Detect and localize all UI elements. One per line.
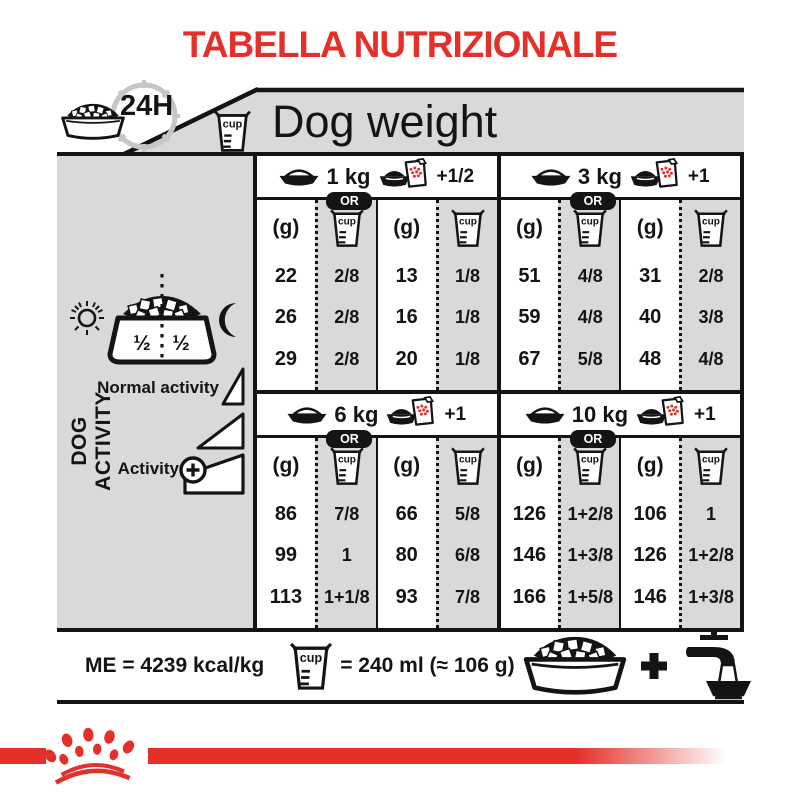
cup-value: 1: [342, 545, 352, 566]
royal-canin-crown-logo: [38, 728, 152, 786]
food-bowl-icon: [515, 635, 635, 697]
grams-value: 40: [639, 306, 661, 329]
cup-equivalence-label: = 240 ml (≈ 106 g): [340, 654, 514, 678]
red-band-right: [148, 748, 744, 764]
grams-value: 86: [275, 503, 297, 526]
grams-value: 29: [275, 348, 297, 371]
pouch-extra-label: +1: [694, 404, 716, 426]
grams-value: 93: [396, 586, 418, 609]
cup-value: 1/8: [455, 307, 480, 328]
cup-value: 1: [706, 504, 716, 525]
or-badge: OR: [326, 430, 372, 448]
grams-header: (g): [393, 216, 420, 240]
pouch-extra-label: +1: [444, 404, 466, 426]
cups-column: 7/8 1 1+1/8: [315, 438, 376, 628]
bowl-pouch-icon: [385, 396, 437, 429]
dog-activity-title: DOG ACTIVITY: [68, 365, 92, 517]
cup-value: 4/8: [578, 266, 603, 287]
sub-10kg-bowl: (g) 126 146 166 1+2/8 1+3/8 1+5/8: [497, 438, 620, 628]
cup-icon: [214, 108, 251, 154]
pouch-extra-label: +1/2: [437, 166, 475, 188]
grams-value: 13: [396, 265, 418, 288]
grams-header: (g): [516, 454, 543, 478]
bowl-pouch-icon: [629, 158, 681, 191]
cup-value: 5/8: [455, 504, 480, 525]
bowl-pouch-icon: [378, 158, 430, 191]
portion-left: ½: [133, 332, 151, 355]
bowl-icon: [279, 167, 319, 186]
grams-column: (g) 126 146 166: [501, 438, 559, 628]
sub-1kg-bowl: (g) 22 26 29 2/8 2/8 2/8: [257, 200, 376, 390]
grams-column: (g) 13 16 20: [378, 200, 436, 390]
cups-column: 4/8 4/8 5/8: [558, 200, 619, 390]
grams-value: 146: [634, 586, 667, 609]
cup-value: 7/8: [334, 504, 359, 525]
grams-value: 26: [275, 306, 297, 329]
sub-3kg-pouch: (g) 31 40 48 2/8 3/8 4/8: [619, 200, 740, 390]
grams-value: 59: [518, 306, 540, 329]
dog-activity-sidebar: ½ ½ DOG ACTIVITY Normal activity Activit…: [57, 156, 253, 628]
cup-value: 3/8: [699, 307, 724, 328]
grams-header: (g): [516, 216, 543, 240]
cup-header: [694, 207, 728, 249]
cups-column: 1 1+2/8 1+3/8: [679, 438, 740, 628]
grams-header: (g): [637, 454, 664, 478]
cup-icon: [330, 207, 364, 249]
sub-6kg-pouch: (g) 66 80 93 5/8 6/8 7/8: [376, 438, 497, 628]
cup-icon: [573, 445, 607, 487]
grams-value: 126: [513, 503, 546, 526]
pouch-extra-label: +1: [688, 166, 710, 188]
grams-value: 113: [270, 586, 302, 609]
feeding-table: ½ ½ DOG ACTIVITY Normal activity Activit…: [57, 152, 744, 632]
cup-value: 5/8: [578, 349, 603, 370]
activity-ramp-medium-icon: [196, 410, 246, 450]
cup-value: 7/8: [455, 587, 480, 608]
cup-value: 2/8: [334, 266, 359, 287]
cup-header: [451, 445, 485, 487]
weight-label: 3 kg: [578, 164, 622, 190]
grams-value: 99: [275, 544, 297, 567]
weight-header-6kg: 6 kg +1 OR: [257, 394, 497, 435]
cup-icon: [573, 207, 607, 249]
cup-icon: [330, 445, 364, 487]
weight-header-3kg: 3 kg +1 OR: [497, 156, 741, 197]
legend-footer: ME = 4239 kcal/kg = 240 ml (≈ 106 g): [57, 632, 744, 704]
cup-icon: [451, 207, 485, 249]
cup-value: 1+2/8: [568, 504, 614, 525]
grams-value: 166: [513, 586, 546, 609]
grams-value: 126: [634, 544, 667, 567]
cup-value: 1+2/8: [688, 545, 734, 566]
sub-1kg-pouch: (g) 13 16 20 1/8 1/8 1/8: [376, 200, 497, 390]
cup-value: 1/8: [455, 266, 480, 287]
bowl-pouch-icon: [635, 396, 687, 429]
grams-value: 146: [513, 544, 546, 567]
cup-icon: [694, 207, 728, 249]
bowl-icon: [287, 405, 327, 424]
sub-3kg-bowl: (g) 51 59 67 4/8 4/8 5/8: [497, 200, 620, 390]
weight-label: 10 kg: [572, 402, 628, 428]
weight-header-1kg: 1 kg +1/2 OR: [257, 156, 497, 197]
sub-6kg-bowl: (g) 86 99 113 7/8 1 1+1/8: [257, 438, 376, 628]
cup-icon: [694, 445, 728, 487]
grams-value: 16: [396, 306, 418, 329]
grams-value: 48: [639, 348, 661, 371]
food-bowl-icon: [58, 100, 128, 144]
portion-right: ½: [172, 332, 190, 355]
cup-value: 1+1/8: [324, 587, 370, 608]
plus-icon: [639, 651, 669, 681]
grams-header: (g): [273, 216, 300, 240]
cup-header: [573, 207, 607, 249]
cup-icon: [290, 637, 332, 695]
grams-column: (g) 22 26 29: [257, 200, 315, 390]
half-half-bowl-icon: ½ ½: [101, 274, 223, 366]
cup-value: 1+3/8: [568, 545, 614, 566]
weight-label: 1 kg: [326, 164, 370, 190]
activity-label: Activity: [107, 459, 179, 479]
cups-column: 1/8 1/8 1/8: [436, 200, 497, 390]
activity-ramp-small-icon: [221, 366, 246, 406]
weights-1kg-3kg: 1 kg +1/2 OR 3 kg +1 OR: [257, 156, 740, 390]
weights-6kg-10kg: 6 kg +1 OR 10 kg +1 OR: [257, 390, 740, 628]
or-badge: OR: [570, 192, 616, 210]
cups-column: 2/8 3/8 4/8: [679, 200, 740, 390]
grams-value: 80: [396, 544, 418, 567]
moon-icon: [215, 302, 245, 338]
sub-10kg-pouch: (g) 106 126 146 1 1+2/8 1+3/8: [619, 438, 740, 628]
grams-header: (g): [273, 454, 300, 478]
cup-header: [330, 207, 364, 249]
grams-header: (g): [637, 216, 664, 240]
cups-column: 1+2/8 1+3/8 1+5/8: [558, 438, 619, 628]
or-badge: OR: [570, 430, 616, 448]
cup-value: 4/8: [699, 349, 724, 370]
cup-icon: [451, 445, 485, 487]
grams-value: 31: [639, 265, 661, 288]
cup-value: 2/8: [699, 266, 724, 287]
cups-column: 5/8 6/8 7/8: [436, 438, 497, 628]
or-badge: OR: [326, 192, 372, 210]
grams-value: 20: [396, 348, 418, 371]
grams-value: 106: [634, 503, 667, 526]
grams-column: (g) 51 59 67: [501, 200, 559, 390]
cup-header: [573, 445, 607, 487]
cup-value: 2/8: [334, 307, 359, 328]
grams-column: (g) 106 126 146: [621, 438, 679, 628]
serving-grid: 1 kg +1/2 OR 3 kg +1 OR: [253, 156, 740, 628]
bowl-icon: [525, 405, 565, 424]
grams-value: 67: [518, 348, 540, 371]
nutrition-label: TABELLA NUTRIZIONALE 24H Dog weight: [0, 0, 800, 800]
me-kcal-label: ME = 4239 kcal/kg: [85, 654, 264, 678]
grams-column: (g) 66 80 93: [378, 438, 436, 628]
normal-activity-label: Normal activity: [97, 378, 219, 398]
weight-header-10kg: 10 kg +1 OR: [497, 394, 741, 435]
cup-header: [694, 445, 728, 487]
duration-label: 24H: [120, 90, 173, 123]
cup-value: 1+5/8: [568, 587, 614, 608]
cup-header: [451, 207, 485, 249]
page-title: TABELLA NUTRIZIONALE: [0, 24, 800, 66]
water-faucet-icon: [673, 631, 759, 701]
cups-column: 2/8 2/8 2/8: [315, 200, 376, 390]
cup-value: 1/8: [455, 349, 480, 370]
cup-value: 2/8: [334, 349, 359, 370]
dog-weight-title: Dog weight: [272, 96, 497, 148]
sun-icon: [69, 300, 105, 336]
grams-value: 51: [518, 265, 540, 288]
grams-column: (g) 86 99 113: [257, 438, 315, 628]
weight-label: 6 kg: [334, 402, 378, 428]
bowl-icon: [531, 167, 571, 186]
cup-value: 6/8: [455, 545, 480, 566]
activity-plus-icon: [178, 455, 208, 485]
cup-value: 1+3/8: [688, 587, 734, 608]
cup-header: [330, 445, 364, 487]
grams-header: (g): [393, 454, 420, 478]
grams-column: (g) 31 40 48: [621, 200, 679, 390]
grams-value: 22: [275, 265, 297, 288]
grams-value: 66: [396, 503, 418, 526]
cup-value: 4/8: [578, 307, 603, 328]
